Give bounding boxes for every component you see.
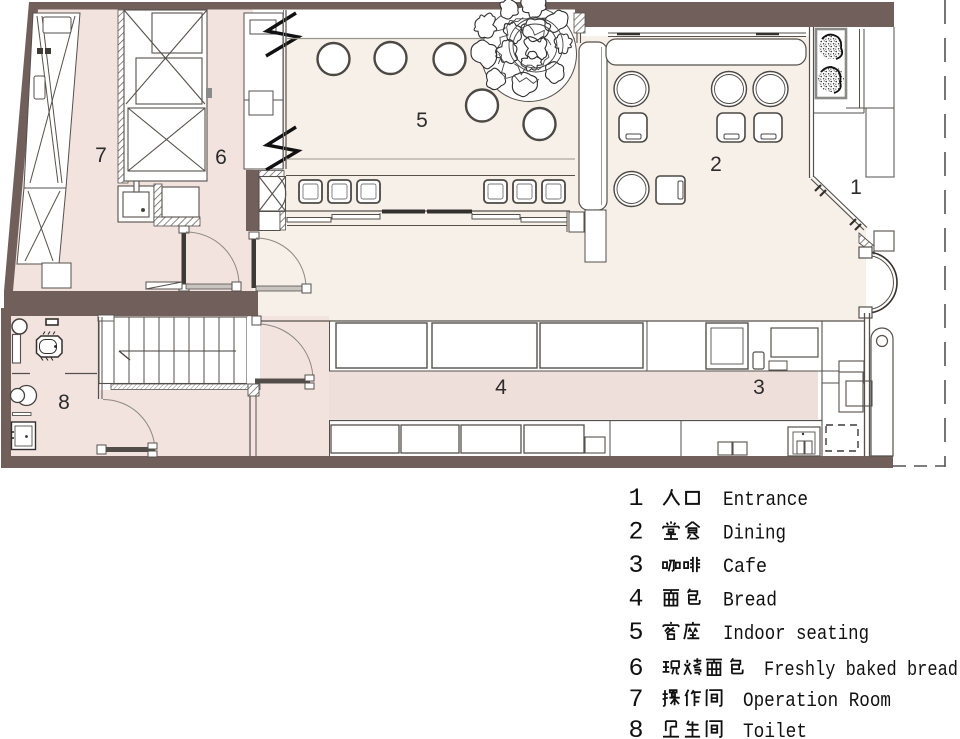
svg-text:5: 5 [628, 618, 643, 647]
svg-text:4: 4 [495, 376, 507, 399]
svg-text:Freshly baked bread: Freshly baked bread [764, 659, 958, 682]
svg-text:1: 1 [628, 484, 643, 513]
svg-text:Dining: Dining [723, 523, 786, 546]
svg-text:2: 2 [628, 518, 643, 547]
svg-text:7: 7 [628, 685, 643, 714]
svg-text:3: 3 [753, 376, 765, 399]
svg-text:Bread: Bread [723, 590, 777, 613]
svg-text:6: 6 [628, 654, 643, 683]
svg-text:3: 3 [628, 551, 643, 580]
svg-text:Indoor seating: Indoor seating [723, 623, 869, 646]
svg-text:1: 1 [850, 176, 862, 199]
svg-text:2: 2 [710, 153, 722, 176]
svg-text:Cafe: Cafe [723, 556, 767, 579]
svg-text:8: 8 [58, 391, 70, 414]
svg-text:8: 8 [628, 716, 643, 739]
svg-text:7: 7 [95, 144, 107, 167]
svg-text:Toilet: Toilet [743, 721, 807, 739]
svg-text:Entrance: Entrance [723, 489, 808, 512]
svg-text:Operation Room: Operation Room [743, 690, 891, 713]
svg-text:5: 5 [416, 109, 428, 132]
svg-text:4: 4 [628, 585, 643, 614]
svg-text:6: 6 [215, 146, 227, 169]
